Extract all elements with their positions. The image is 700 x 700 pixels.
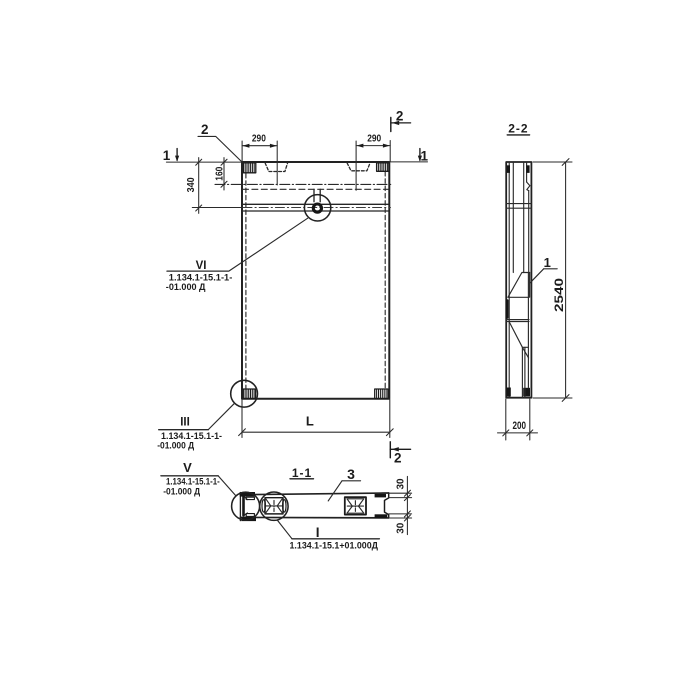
svg-text:160: 160: [213, 167, 225, 181]
svg-text:VI: VI: [196, 260, 207, 272]
svg-text:200: 200: [513, 420, 527, 432]
svg-text:1.134.1-15.1-1-: 1.134.1-15.1-1-: [161, 431, 222, 441]
svg-text:1.134.1-15.1-1-: 1.134.1-15.1-1-: [166, 476, 220, 486]
svg-text:1.134.1-15.1-1-: 1.134.1-15.1-1-: [169, 272, 233, 282]
svg-text:III: III: [180, 417, 190, 429]
svg-text:1.134.1-15.1+01.000Д: 1.134.1-15.1+01.000Д: [290, 540, 379, 550]
svg-text:1: 1: [544, 255, 551, 270]
svg-text:I: I: [316, 525, 320, 540]
svg-text:-01.000 Д: -01.000 Д: [163, 487, 201, 497]
svg-text:1: 1: [163, 148, 171, 163]
svg-text:3: 3: [347, 466, 355, 482]
svg-text:-01.000 Д: -01.000 Д: [157, 441, 195, 451]
svg-text:2540: 2540: [554, 278, 566, 312]
svg-text:L: L: [306, 414, 314, 429]
svg-text:2: 2: [394, 451, 402, 466]
svg-text:2: 2: [201, 122, 209, 137]
svg-text:1-1: 1-1: [292, 466, 312, 480]
svg-text:290: 290: [367, 132, 381, 144]
svg-text:290: 290: [252, 133, 266, 145]
svg-text:2-2: 2-2: [508, 121, 528, 135]
svg-text:340: 340: [185, 177, 197, 192]
svg-text:1: 1: [421, 148, 429, 163]
svg-text:30: 30: [396, 522, 407, 533]
svg-text:V: V: [183, 460, 192, 475]
svg-text:30: 30: [396, 478, 407, 489]
svg-text:-01.000 Д: -01.000 Д: [166, 282, 206, 292]
svg-text:2: 2: [396, 109, 404, 124]
